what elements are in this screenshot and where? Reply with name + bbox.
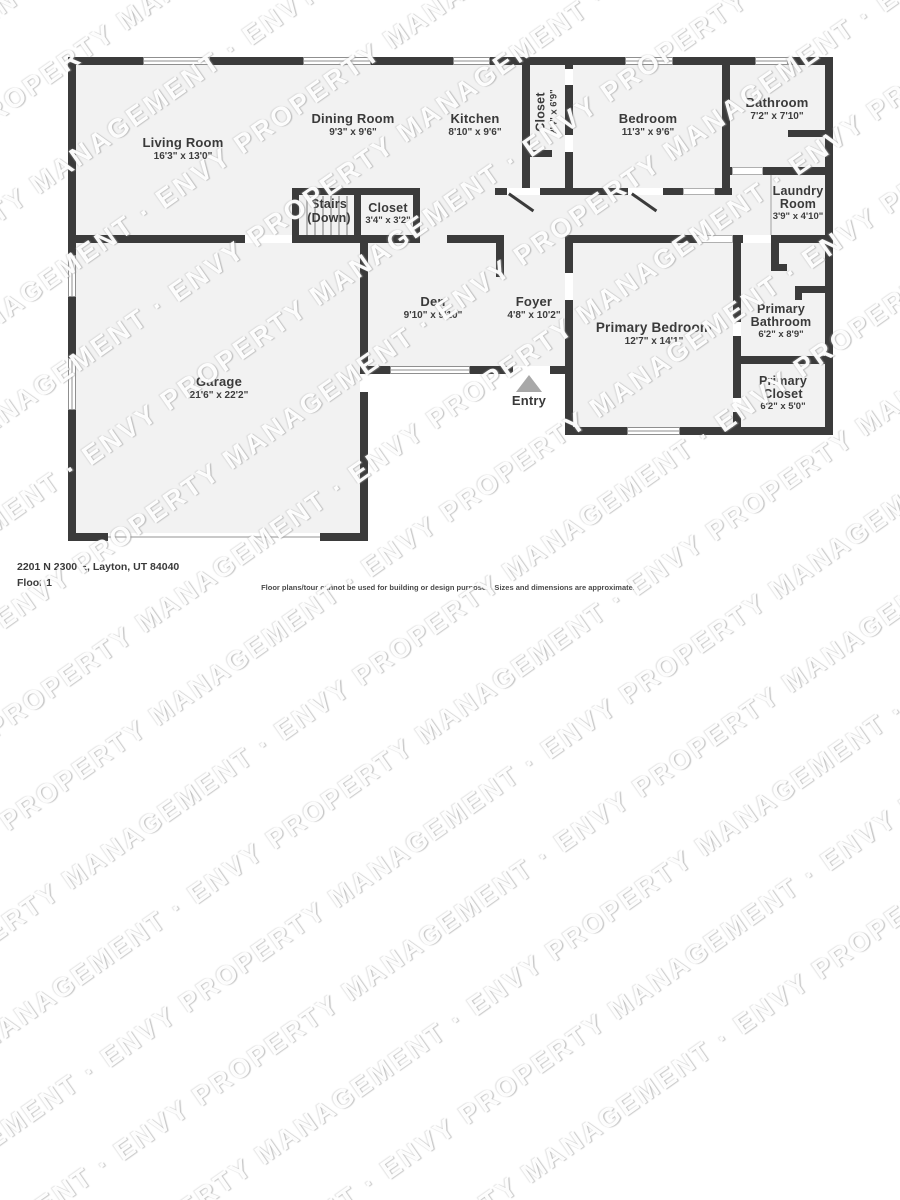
property-address: 2201 N 2300 E, Layton, UT 84040: [17, 561, 179, 573]
footer: 2201 N 2300 E, Layton, UT 84040 Floor 1 …: [0, 0, 900, 600]
floorplan-canvas: Living Room 16'3" x 13'0" Dining Room 9'…: [0, 0, 900, 600]
disclaimer-text: Floor plans/tour cannot be used for buil…: [261, 583, 635, 592]
floor-label: Floor 1: [17, 577, 52, 589]
